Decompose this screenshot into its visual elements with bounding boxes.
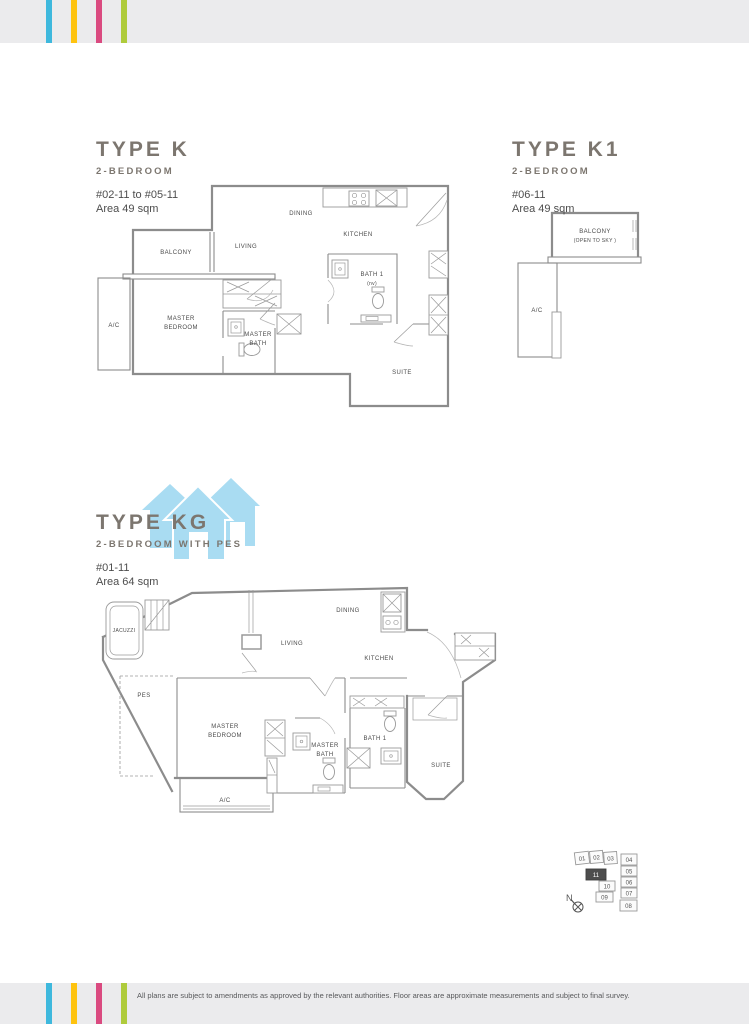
ac-ledge	[180, 778, 273, 812]
locator-unit-06: 06	[626, 881, 633, 887]
room-label-balcony-note: (OPEN TO SKY )	[574, 238, 617, 244]
type-k1-subtitle: 2-BEDROOM	[512, 166, 621, 177]
room-label-ac: A/C	[219, 798, 230, 804]
room-label-master-bath: MASTER	[311, 743, 339, 749]
type-kg-area: Area 64 sqm	[96, 575, 242, 589]
locator-unit-03: 03	[607, 856, 615, 862]
type-kg-floorplan: JACUZZI PES LIVING DINING KITCHEN MASTER…	[95, 578, 515, 828]
room-label-ac: A/C	[531, 308, 542, 314]
locator-unit-11: 11	[593, 873, 600, 879]
type-k1-section: TYPE K1 2-BEDROOM #06-11 Area 49 sqm	[512, 138, 621, 217]
room-label-bath1-note: (nv)	[367, 281, 377, 287]
svg-text:BEDROOM: BEDROOM	[208, 733, 242, 739]
stripe-cyan	[46, 0, 52, 43]
locator-unit-09: 09	[601, 896, 608, 902]
room-label-suite: SUITE	[431, 763, 451, 769]
room-label-suite: SUITE	[392, 370, 412, 376]
locator-unit-02: 02	[593, 855, 601, 862]
room-label-kitchen: KITCHEN	[343, 232, 372, 238]
footer-disclaimer: All plans are subject to amendments as a…	[137, 991, 630, 1000]
toilet-icon	[385, 717, 396, 732]
top-band	[0, 0, 749, 43]
locator-unit-05: 05	[626, 870, 633, 876]
type-k-section: TYPE K 2-BEDROOM #02-11 to #05-11 Area 4…	[96, 138, 190, 217]
locator-unit-04: 04	[626, 858, 633, 864]
stripe-pink	[96, 0, 102, 43]
basin-icon	[228, 319, 244, 336]
room-label-ac: A/C	[108, 323, 119, 329]
svg-text:BATH: BATH	[249, 341, 266, 347]
room-label-bath1: BATH 1	[364, 736, 387, 742]
type-k1-title: TYPE K1	[512, 138, 621, 162]
room-label-balcony: BALCONY	[579, 229, 610, 235]
type-k1-levels: #06-11	[512, 188, 621, 202]
svg-text:BEDROOM: BEDROOM	[164, 325, 198, 331]
locator-unit-10: 10	[604, 885, 611, 891]
balcony-slab	[123, 274, 275, 279]
room-label-master-bedroom: MASTER	[211, 724, 239, 730]
locator-unit-07: 07	[626, 892, 633, 898]
type-k-levels: #02-11 to #05-11	[96, 188, 190, 202]
room-label-dining: DINING	[336, 608, 359, 614]
type-kg-title: TYPE KG	[96, 511, 242, 535]
room-label-bath1: BATH 1	[361, 272, 384, 278]
bottom-band: All plans are subject to amendments as a…	[0, 983, 749, 1024]
room-label-kitchen: KITCHEN	[364, 656, 393, 662]
stripe-yellow	[71, 983, 77, 1024]
room-label-pes: PES	[137, 693, 150, 699]
stripe-cyan	[46, 983, 52, 1024]
type-k-area: Area 49 sqm	[96, 202, 190, 216]
type-kg-stairs	[145, 600, 169, 630]
column	[552, 312, 561, 358]
north-label: N	[566, 893, 573, 903]
type-k-subtitle: 2-BEDROOM	[96, 166, 190, 177]
type-k1-room-labels: BALCONY (OPEN TO SKY ) A/C	[531, 229, 616, 314]
basin-icon	[293, 733, 310, 750]
room-label-balcony: BALCONY	[160, 250, 191, 256]
type-kg-subtitle: 2-BEDROOM WITH PES	[96, 539, 242, 550]
svg-text:BATH: BATH	[316, 752, 333, 758]
toilet-icon	[324, 765, 335, 780]
unit-locator: 01 02 03 04 05 11 06 10 07 09 08 N	[563, 843, 668, 928]
type-kg-kitchen-fixtures	[381, 592, 405, 632]
room-label-master-bedroom: MASTER	[167, 316, 195, 322]
stripe-yellow	[71, 0, 77, 43]
stripe-green	[121, 983, 127, 1024]
room-label-living: LIVING	[281, 641, 303, 647]
type-k1-floorplan: BALCONY (OPEN TO SKY ) A/C	[508, 200, 668, 368]
type-kg-levels: #01-11	[96, 561, 242, 575]
locator-unit-08: 08	[625, 904, 632, 910]
stripe-pink	[96, 983, 102, 1024]
type-kg-section: TYPE KG 2-BEDROOM WITH PES #01-11 Area 6…	[96, 511, 242, 590]
room-label-living: LIVING	[235, 244, 257, 250]
type-k1-area: Area 49 sqm	[512, 202, 621, 216]
type-k-title: TYPE K	[96, 138, 190, 162]
room-label-master-bath: MASTER	[244, 332, 272, 338]
type-k-kitchen-fixtures	[323, 188, 407, 207]
room-label-dining: DINING	[289, 211, 312, 217]
room-label-jacuzzi: JACUZZI	[113, 628, 136, 634]
pes-boundary	[120, 676, 175, 776]
toilet-icon	[373, 294, 384, 309]
north-compass-icon: N	[566, 893, 583, 912]
stripe-green	[121, 0, 127, 43]
stove-icon	[349, 191, 369, 206]
locator-units: 01 02 03 04 05 11 06 10 07 09 08	[574, 850, 637, 911]
